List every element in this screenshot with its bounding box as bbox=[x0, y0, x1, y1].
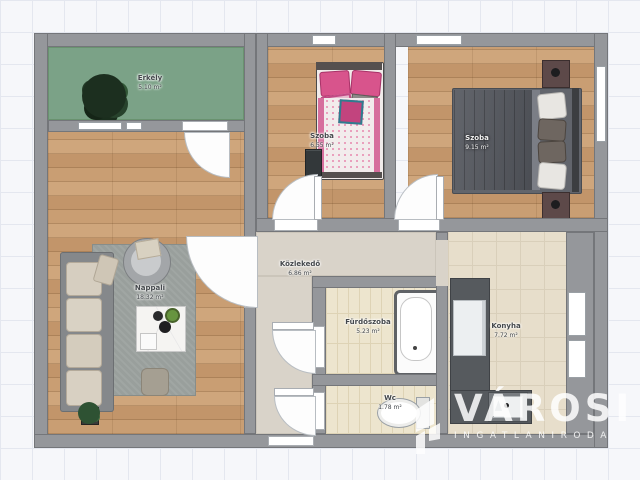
room-label-szoba-nagy: Szoba 9.15 m² bbox=[437, 134, 517, 152]
room-area: 6.86 m² bbox=[260, 269, 340, 278]
room-name: Közlekedő bbox=[260, 260, 340, 269]
room-name: Szoba bbox=[437, 134, 517, 143]
watermark-tagline: INGATLANIRODA bbox=[454, 431, 640, 441]
window bbox=[78, 122, 122, 130]
balcony-door-leaf bbox=[182, 121, 228, 131]
window bbox=[568, 340, 586, 378]
room-name: Konyha bbox=[466, 322, 546, 331]
decor-bowl bbox=[159, 321, 171, 333]
small-bedroom-doorway bbox=[274, 219, 318, 231]
table-lamp bbox=[551, 200, 560, 209]
bed-pillow-square bbox=[338, 99, 364, 125]
large-bedroom-door-arc bbox=[394, 174, 438, 220]
sofa-cushion bbox=[66, 298, 102, 332]
wall bbox=[34, 33, 48, 448]
kitchen-opening bbox=[436, 240, 448, 286]
room-name: Szoba bbox=[282, 132, 362, 141]
window bbox=[126, 122, 142, 130]
sofa-cushion bbox=[66, 370, 102, 406]
table-lamp bbox=[551, 68, 560, 77]
varosi-building-logo-icon bbox=[410, 392, 446, 456]
bathtub-drain bbox=[413, 346, 417, 350]
wall bbox=[384, 33, 396, 232]
room-area: 5.10 m² bbox=[110, 83, 190, 92]
room-name: Erkély bbox=[110, 74, 190, 83]
window bbox=[416, 35, 462, 45]
pouf bbox=[141, 368, 169, 396]
room-label-kozlekedo: Közlekedő 6.86 m² bbox=[260, 260, 340, 278]
wall bbox=[312, 374, 448, 386]
room-area: 7.72 m² bbox=[466, 331, 546, 340]
decor-bowl bbox=[153, 311, 163, 321]
room-area: 5.23 m² bbox=[328, 327, 408, 336]
bed-pillow bbox=[537, 92, 568, 121]
bed-footboard bbox=[316, 172, 382, 178]
wall bbox=[256, 33, 268, 232]
room-area: 6.55 m² bbox=[282, 141, 362, 150]
bed-headboard bbox=[572, 88, 579, 192]
large-bedroom-doorway bbox=[398, 219, 440, 231]
potted-plant bbox=[78, 402, 100, 424]
small-bedroom-door-leaf bbox=[314, 176, 322, 220]
bed-pillow bbox=[537, 162, 567, 190]
window bbox=[596, 66, 606, 142]
watermark-brand: VÁROSI bbox=[454, 390, 640, 427]
large-bedroom-door-leaf bbox=[436, 176, 444, 220]
room-name: Nappali bbox=[110, 284, 190, 293]
bed-headboard bbox=[316, 62, 382, 70]
bathroom-door-leaf bbox=[272, 322, 314, 330]
watermark: VÁROSI INGATLANIRODA bbox=[410, 390, 640, 441]
bed-pillow bbox=[537, 140, 566, 163]
decor-box bbox=[140, 333, 157, 350]
wc-door-leaf bbox=[274, 388, 314, 396]
room-name: Fürdőszoba bbox=[328, 318, 408, 327]
room-area: 18.32 m² bbox=[110, 293, 190, 302]
window bbox=[312, 35, 336, 45]
wall bbox=[244, 33, 256, 434]
room-label-erkely: Erkély 5.10 m² bbox=[110, 74, 190, 92]
bed-pillow bbox=[537, 118, 566, 142]
room-label-nappali: Nappali 18.32 m² bbox=[110, 284, 190, 302]
room-label-szoba-kicsi: Szoba 6.55 m² bbox=[282, 132, 362, 150]
entry-door bbox=[268, 436, 314, 446]
room-label-konyha: Konyha 7.72 m² bbox=[466, 322, 546, 340]
window bbox=[568, 292, 586, 336]
floor-plan-canvas: Erkély 5.10 m² Szoba 6.55 m² Szoba 9.15 … bbox=[0, 0, 640, 480]
room-label-furdoszoba: Fürdőszoba 5.23 m² bbox=[328, 318, 408, 336]
room-area: 9.15 m² bbox=[437, 143, 517, 152]
sofa-cushion bbox=[66, 334, 102, 368]
